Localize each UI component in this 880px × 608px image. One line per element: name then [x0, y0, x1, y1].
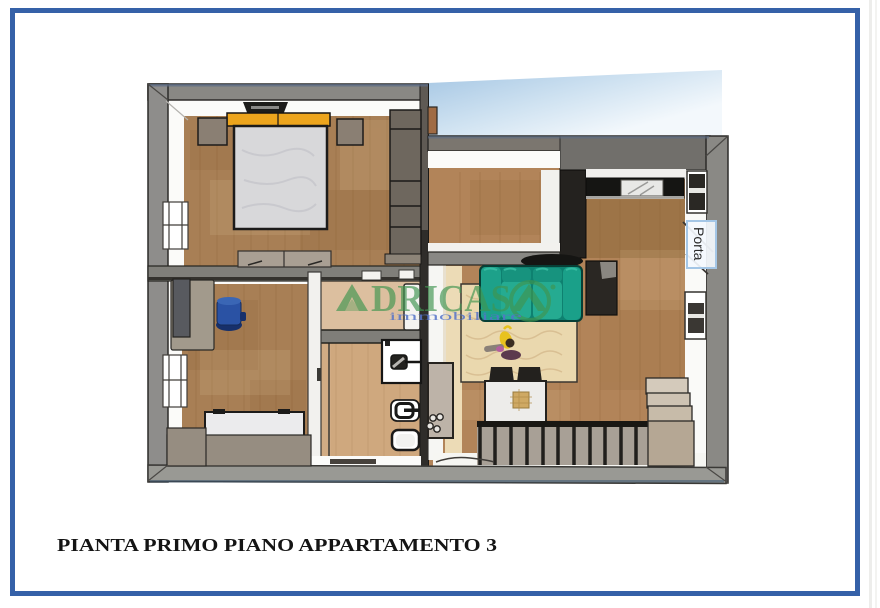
svg-text:PIANTA PRIMO PIANO APPARTAMENT: PIANTA PRIMO PIANO APPARTAMENTO 3 [57, 535, 497, 555]
svg-text:Porta: Porta [691, 227, 707, 261]
svg-text:immobiliare: immobiliare [389, 311, 522, 323]
